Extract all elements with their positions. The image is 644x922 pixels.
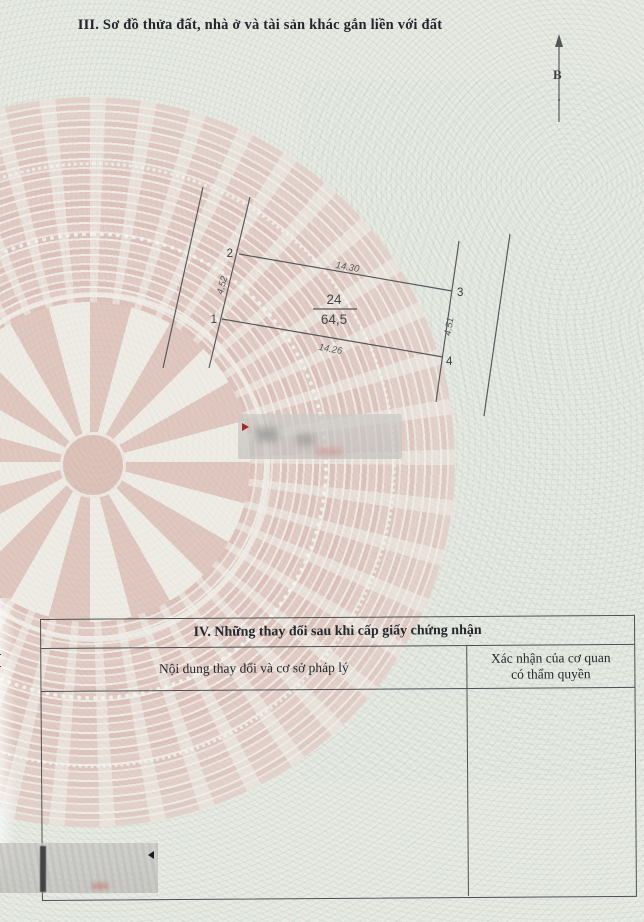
edge-length-bottom: 14.26 — [318, 342, 344, 357]
vertex-label-3: 3 — [457, 287, 463, 299]
blur-smudge — [256, 428, 278, 441]
north-label: B — [553, 67, 562, 82]
page-edge-glare — [0, 598, 16, 868]
parcel-area: 64,5 — [321, 312, 347, 327]
blur-smudge — [92, 883, 108, 889]
edge-length-right: 4.51 — [443, 317, 457, 337]
blurred-redaction-strip — [0, 843, 158, 893]
vertex-label-4: 4 — [446, 356, 453, 368]
blur-smudge — [316, 448, 342, 456]
section4-header-row: Nội dung thay đổi và cơ sở pháp lý Xác n… — [41, 645, 634, 692]
parcel-number: 24 — [326, 292, 342, 307]
certificate-page: { "document": { "section3_title": "III. … — [0, 0, 644, 922]
edge-length-left: 4,52 — [215, 274, 231, 295]
vertex-label-1: 1 — [211, 314, 217, 326]
boundary-line-far-left — [163, 187, 203, 368]
col-header-content-change: Nội dung thay đổi và cơ sở pháp lý — [41, 646, 467, 691]
cut-off-letter-fragment: I — [0, 650, 2, 673]
black-triangle-marker — [148, 851, 154, 859]
col-header-authority-confirmation: Xác nhận của cơ quan có thẩm quyền — [467, 645, 634, 688]
body-cell-authority-confirmation — [467, 688, 635, 896]
section4-title: IV. Những thay đổi sau khi cấp giấy chứn… — [41, 616, 634, 649]
edge-length-top: 14.30 — [335, 260, 361, 275]
north-arrow-icon: B — [553, 34, 563, 122]
boundary-line-far-right — [484, 234, 510, 416]
blurred-redaction-strip — [238, 414, 402, 459]
blur-smudge — [296, 434, 314, 445]
boundary-line-left — [209, 197, 250, 368]
dark-bar-artifact — [40, 846, 46, 892]
vertex-label-2: 2 — [227, 248, 233, 260]
red-triangle-marker — [242, 423, 249, 431]
